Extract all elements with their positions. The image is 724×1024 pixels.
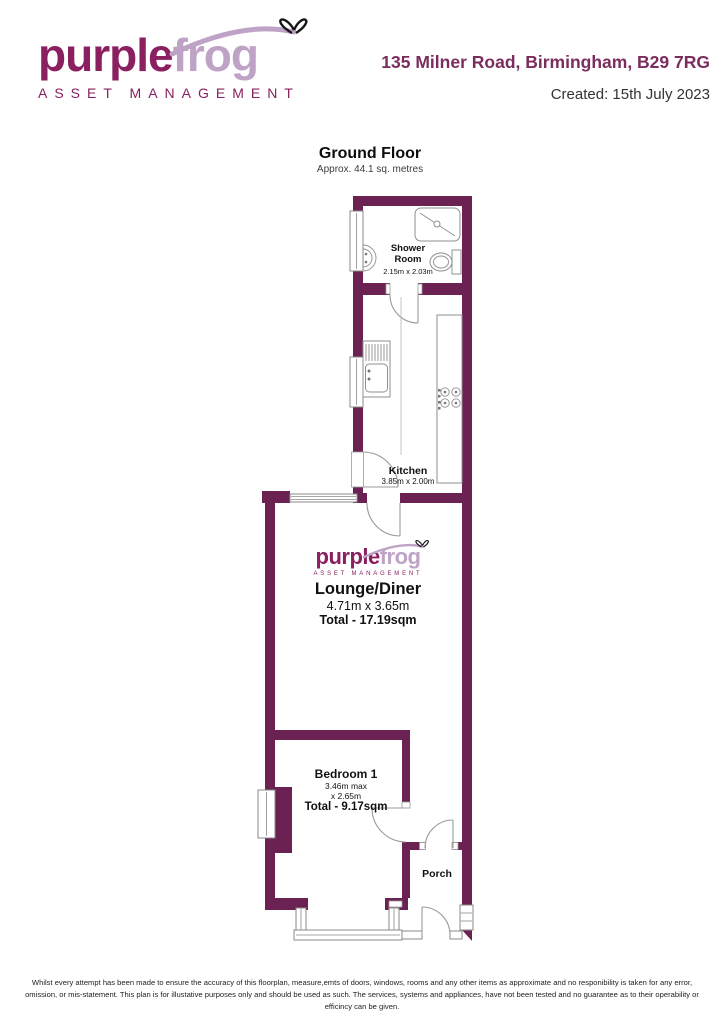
bay-window — [294, 908, 462, 940]
door-kitchen-to-lounge — [367, 503, 400, 536]
shower-tray — [415, 208, 460, 241]
room-name: Bedroom 1 — [285, 767, 407, 781]
room-label-bedroom: Bedroom 1 3.46m max x 2.65m Total - 9.17… — [285, 767, 407, 813]
door-porch-inner — [425, 820, 453, 848]
room-name: Shower Room — [383, 244, 433, 266]
watermark-word-purple: purple — [316, 544, 380, 569]
watermark-wordmark: purplefrog — [316, 546, 421, 568]
room-name: Lounge/Diner — [283, 580, 453, 599]
room-dimensions-line1: 3.46m max — [285, 781, 407, 791]
room-dimensions: 3.85m x 2.00m — [370, 477, 446, 486]
watermark-logo: purplefrog ASSET MANAGEMENT — [283, 546, 453, 577]
floorplan-page: purplefrog ASSET MANAGEMENT 135 Milner R… — [0, 0, 724, 1024]
kitchen-counter-hob — [437, 315, 462, 483]
room-dimensions: 4.71m x 3.65m — [283, 599, 453, 613]
room-total-area: Total - 17.19sqm — [283, 613, 453, 627]
room-label-shower: Shower Room 2.15m x 2.03m — [372, 244, 444, 276]
room-dimensions: 2.15m x 2.03m — [372, 267, 444, 276]
room-name: Kitchen — [370, 465, 446, 477]
disclaimer-text: Whilst every attempt has been made to en… — [15, 977, 709, 1012]
floorplan-drawing — [0, 0, 724, 1024]
room-dimensions-line2: x 2.65m — [285, 791, 407, 801]
room-label-kitchen: Kitchen 3.85m x 2.00m — [370, 465, 446, 486]
door-shower-to-kitchen — [390, 295, 418, 323]
watermark-word-frog: frog — [380, 544, 421, 569]
room-label-porch: Porch — [409, 868, 465, 880]
room-name: Porch — [409, 868, 465, 880]
watermark-tagline: ASSET MANAGEMENT — [283, 571, 453, 577]
room-total-area: Total - 9.17sqm — [285, 801, 407, 813]
door-front-entrance — [422, 907, 450, 935]
kitchen-sink-unit — [363, 341, 390, 397]
room-label-lounge: purplefrog ASSET MANAGEMENT Lounge/Diner… — [283, 546, 453, 627]
